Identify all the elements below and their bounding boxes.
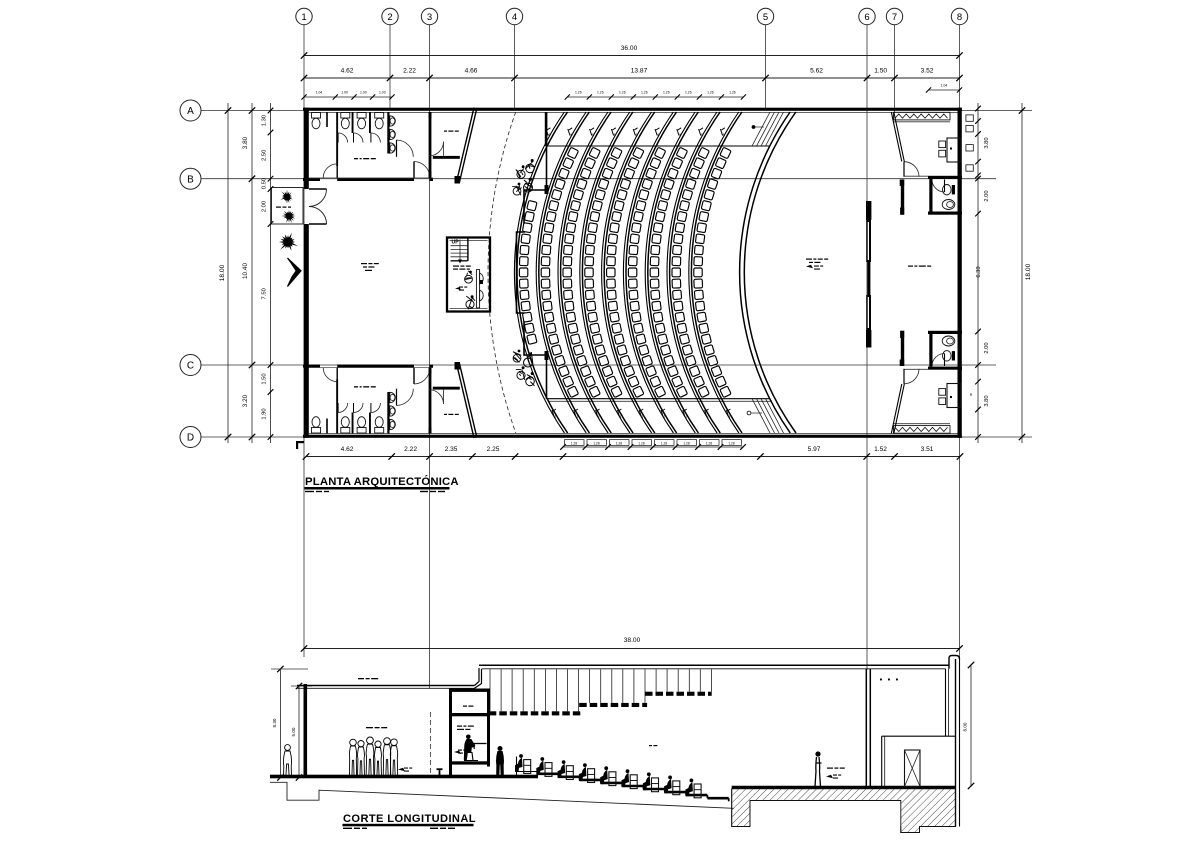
svg-text:4: 4 [701,133,703,137]
svg-text:3.52: 3.52 [921,68,934,75]
svg-text:1.28: 1.28 [571,441,577,445]
svg-text:10.40: 10.40 [242,263,249,279]
svg-text:4: 4 [598,415,600,419]
svg-text:1.04: 1.04 [941,84,948,88]
svg-text:3.20: 3.20 [242,394,249,407]
svg-text:3.80: 3.80 [242,136,249,149]
svg-text:0.50: 0.50 [262,178,268,189]
svg-text:1: 1 [301,12,306,23]
svg-text:4: 4 [619,415,621,419]
svg-text:3: 3 [427,12,432,23]
svg-text:1.26: 1.26 [685,91,692,95]
svg-text:R: R [970,393,973,397]
svg-text:1.28: 1.28 [683,441,689,445]
svg-text:1.00: 1.00 [341,91,348,95]
svg-text:UP: UP [452,240,460,246]
svg-text:1.52: 1.52 [874,446,887,453]
svg-text:B: B [187,174,194,185]
svg-text:4: 4 [707,415,709,419]
svg-text:1.26: 1.26 [575,91,582,95]
svg-text:13.87: 13.87 [631,68,648,75]
svg-text:8: 8 [957,12,962,23]
svg-text:4.66: 4.66 [465,68,478,75]
svg-text:36.00: 36.00 [621,45,638,52]
svg-text:2.00: 2.00 [262,201,268,212]
svg-text:4: 4 [613,133,615,137]
svg-text:4: 4 [679,133,681,137]
svg-text:4: 4 [663,415,665,419]
svg-text:D: D [187,433,194,444]
svg-text:2.22: 2.22 [403,68,416,75]
svg-text:5.00: 5.00 [291,727,296,736]
svg-text:7.50: 7.50 [262,288,268,299]
svg-text:5: 5 [763,12,768,23]
svg-text:4: 4 [635,133,637,137]
svg-text:CORTE LONGITUDINAL: CORTE LONGITUDINAL [343,813,476,825]
svg-text:1.28: 1.28 [638,441,644,445]
svg-text:3.80: 3.80 [984,395,990,406]
svg-text:38.00: 38.00 [624,637,641,644]
svg-text:2.00: 2.00 [984,190,990,201]
svg-text:4.62: 4.62 [341,68,354,75]
svg-text:4: 4 [657,133,659,137]
svg-text:4: 4 [570,133,572,137]
svg-text:6.39: 6.39 [976,266,982,277]
svg-text:3.80: 3.80 [984,137,990,148]
svg-text:1.50: 1.50 [874,68,887,75]
svg-text:1.50: 1.50 [262,373,268,384]
svg-text:18.00: 18.00 [219,264,226,281]
svg-text:18.00: 18.00 [1025,263,1032,280]
svg-text:3.51: 3.51 [921,446,934,453]
svg-text:6: 6 [864,12,869,23]
svg-text:1.26: 1.26 [707,91,714,95]
svg-text:2.50: 2.50 [262,150,268,161]
svg-text:1.28: 1.28 [728,441,734,445]
svg-text:1.30: 1.30 [262,115,268,126]
svg-text:2.35: 2.35 [445,446,458,453]
svg-text:1.28: 1.28 [616,441,622,445]
svg-text:4: 4 [592,133,594,137]
svg-text:1.00: 1.00 [379,91,386,95]
svg-text:C: C [187,361,194,372]
svg-text:A: A [187,106,194,117]
svg-text:2.22: 2.22 [404,446,417,453]
svg-text:4.62: 4.62 [341,446,354,453]
svg-text:4: 4 [548,133,550,137]
svg-text:1.00: 1.00 [360,91,367,95]
svg-text:1.28: 1.28 [661,441,667,445]
svg-text:1.90: 1.90 [262,408,268,419]
svg-text:5.97: 5.97 [808,446,821,453]
svg-text:1.26: 1.26 [597,91,604,95]
svg-text:4: 4 [685,415,687,419]
svg-text:2.00: 2.00 [984,342,990,353]
svg-text:2: 2 [387,12,392,23]
svg-text:8.30: 8.30 [272,718,277,727]
svg-text:8.00: 8.00 [963,722,968,731]
svg-text:1.26: 1.26 [619,91,626,95]
svg-text:1.28: 1.28 [593,441,599,445]
svg-text:2.25: 2.25 [487,446,500,453]
svg-text:4: 4 [722,133,724,137]
svg-text:PLANTA ARQUITECTÓNICA: PLANTA ARQUITECTÓNICA [305,475,459,488]
svg-text:1.28: 1.28 [706,441,712,445]
svg-text:1.04: 1.04 [316,91,323,95]
svg-text:1.26: 1.26 [641,91,648,95]
svg-text:1.26: 1.26 [663,91,670,95]
svg-text:7: 7 [892,12,897,23]
svg-text:4: 4 [576,415,578,419]
svg-text:4: 4 [512,12,517,23]
svg-text:5.62: 5.62 [810,68,823,75]
svg-text:4: 4 [728,415,730,419]
svg-text:4: 4 [554,415,556,419]
svg-text:4: 4 [641,415,643,419]
svg-text:1.26: 1.26 [729,91,736,95]
